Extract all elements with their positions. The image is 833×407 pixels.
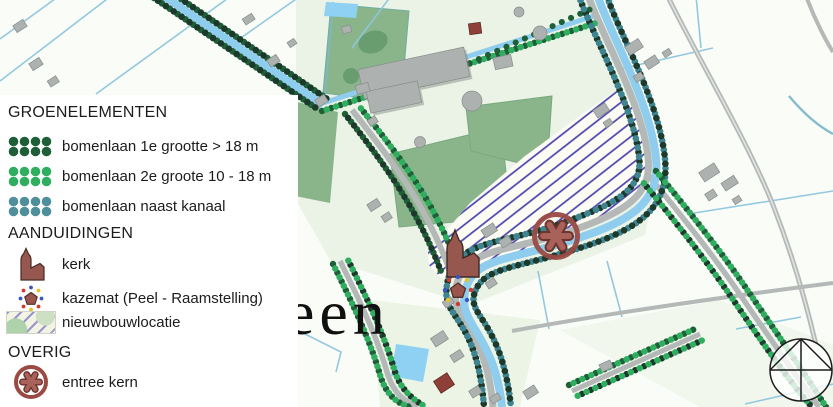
legend-panel: GROENELEMENTEN bomenlaan 1e grootte > 18…: [0, 95, 298, 407]
legend-item-bomenlaan-1e-grootte: bomenlaan 1e grootte > 18 m: [0, 135, 298, 158]
legend-item-label: nieuwbouwlocatie: [62, 314, 180, 331]
legend-item-bomenlaan-naast-kanaal: bomenlaan naast kanaal: [0, 195, 298, 218]
legend-item-kerk: kerk: [0, 247, 298, 281]
map-place-label: een: [286, 277, 390, 348]
tree-row-green-icon: [0, 165, 62, 188]
tree-row-dark-green-icon: [0, 135, 62, 158]
legend-item-kazemat: kazemat (Peel - Raamstelling): [0, 283, 298, 313]
legend-item-label: entree kern: [62, 374, 138, 391]
legend-section-aanduidingen: AANDUIDINGEN: [8, 225, 133, 243]
village-entrance-icon: [0, 363, 62, 401]
legend-section-groenelementen: GROENELEMENTEN: [8, 104, 167, 122]
legend-item-label: bomenlaan 2e groote 10 - 18 m: [62, 168, 271, 185]
legend-item-label: kazemat (Peel - Raamstelling): [62, 290, 263, 307]
kazemat-icon: [0, 283, 62, 313]
legend-item-entree-kern: entree kern: [0, 363, 298, 401]
new-development-hatch-icon: [0, 311, 62, 334]
legend-item-label: kerk: [62, 256, 90, 273]
red-square-marker: [468, 22, 481, 35]
legend-item-bomenlaan-2e-grootte: bomenlaan 2e groote 10 - 18 m: [0, 165, 298, 188]
legend-section-overig: OVERIG: [8, 344, 71, 362]
legend-item-nieuwbouwlocatie: nieuwbouwlocatie: [0, 311, 298, 334]
map-figure: een: [0, 0, 833, 407]
tree-row-teal-icon: [0, 195, 62, 218]
legend-item-label: bomenlaan 1e grootte > 18 m: [62, 138, 258, 155]
compass-rose: [770, 339, 832, 401]
church-icon: [0, 247, 62, 281]
legend-item-label: bomenlaan naast kanaal: [62, 198, 225, 215]
